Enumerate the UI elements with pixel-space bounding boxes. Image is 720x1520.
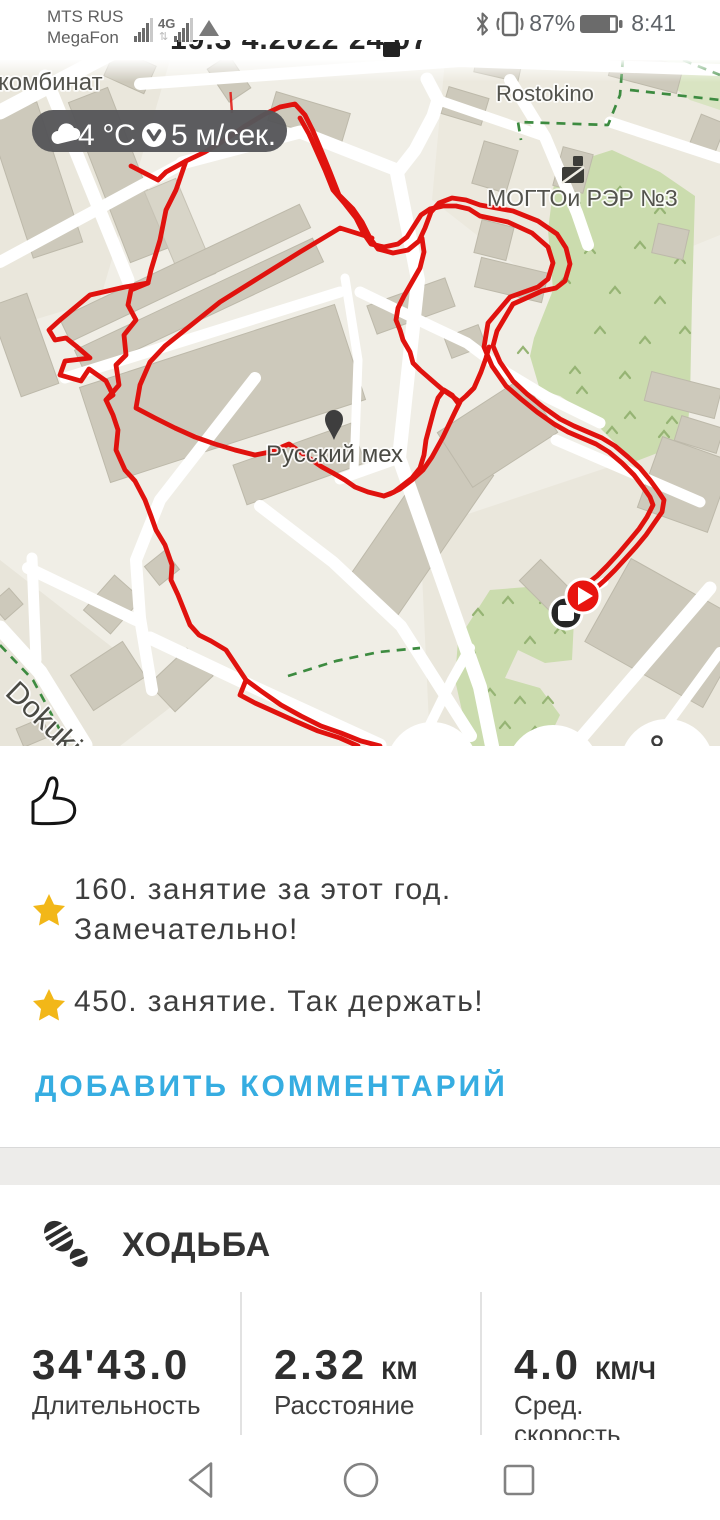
- svg-text:комбинат: комбинат: [0, 69, 103, 96]
- svg-text:Русский мех: Русский мех: [266, 441, 403, 468]
- svg-text:4 °C: 4 °C: [78, 119, 135, 152]
- svg-text:Rostokino: Rostokino: [496, 81, 594, 106]
- svg-text:5 м/сек.: 5 м/сек.: [171, 119, 276, 152]
- svg-text:4G: 4G: [158, 16, 175, 31]
- svg-text:МОГТОи РЭР №3: МОГТОи РЭР №3: [487, 185, 678, 211]
- svg-text:⇅: ⇅: [159, 31, 168, 43]
